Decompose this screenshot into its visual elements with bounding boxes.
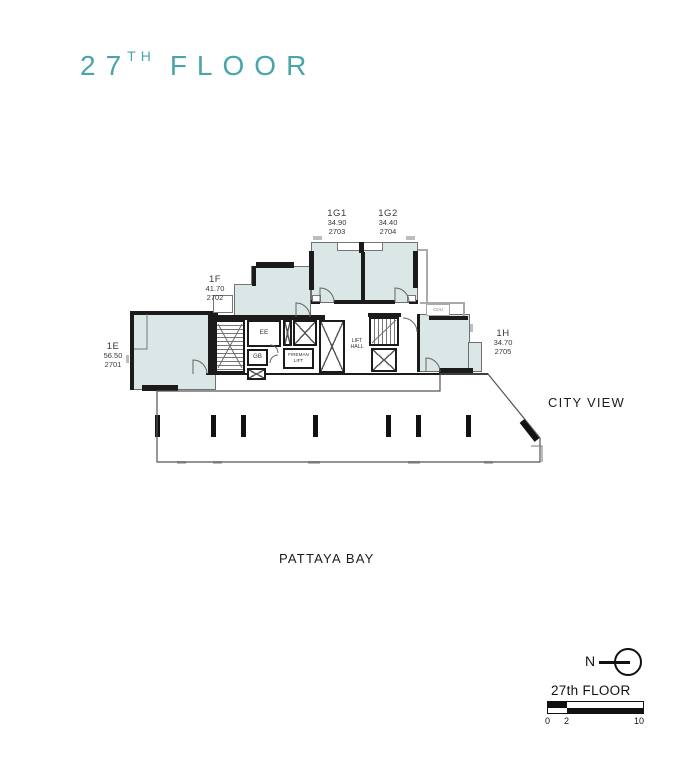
dim-tick bbox=[484, 461, 493, 464]
cdu-outline bbox=[463, 302, 465, 316]
column-mark bbox=[155, 415, 160, 437]
plan-lines bbox=[0, 0, 700, 758]
dim-tick bbox=[470, 324, 473, 332]
wall bbox=[334, 300, 395, 304]
north-label: N bbox=[585, 653, 595, 669]
north-compass-icon bbox=[614, 648, 642, 676]
fireman-line2: LIFT bbox=[283, 358, 314, 364]
lift-shaft-b bbox=[319, 320, 345, 373]
unit-label-1e: 1E 56.50 2701 bbox=[91, 341, 135, 370]
cdu-outline bbox=[418, 249, 428, 251]
legend-floor-label: 27th FLOOR bbox=[551, 683, 631, 698]
unit-number: 2703 bbox=[315, 228, 359, 237]
wall bbox=[309, 251, 314, 290]
scale-tick-2: 2 bbox=[564, 716, 569, 726]
city-view-label: CITY VIEW bbox=[548, 395, 625, 410]
lifthall-line2: HALL bbox=[345, 344, 369, 350]
wall bbox=[429, 316, 468, 320]
column-mark bbox=[466, 415, 471, 437]
fireman-lift-label: FIREMAN LIFT bbox=[283, 352, 314, 363]
stair-right bbox=[369, 317, 399, 346]
unit-1g1-room bbox=[311, 242, 364, 303]
column-mark bbox=[313, 415, 318, 437]
wall bbox=[361, 252, 365, 304]
scale-tick-0: 0 bbox=[545, 716, 550, 726]
dim-tick bbox=[177, 461, 186, 464]
wall bbox=[417, 314, 420, 372]
lift-hall-label: LIFT HALL bbox=[345, 338, 369, 350]
cdu-label: CDU bbox=[426, 307, 450, 313]
unit-label-1g2: 1G2 34.40 2704 bbox=[366, 208, 410, 237]
unit-label-1h: 1H 34.70 2705 bbox=[481, 328, 525, 357]
unit-number: 2702 bbox=[193, 294, 237, 303]
dim-tick bbox=[408, 461, 420, 464]
lift-shaft-a bbox=[293, 320, 317, 346]
scale-bar bbox=[547, 701, 644, 714]
wall bbox=[359, 242, 364, 253]
dim-tick bbox=[308, 461, 320, 464]
lift-shaft-c bbox=[371, 348, 397, 372]
unit-label-1f: 1F 41.70 2702 bbox=[193, 274, 237, 303]
stair-left bbox=[215, 320, 245, 373]
column-mark bbox=[416, 415, 421, 437]
ee-label: EE bbox=[247, 329, 281, 337]
door-threshold bbox=[407, 295, 416, 302]
cdu-outline bbox=[426, 250, 428, 303]
gb-label: GB bbox=[247, 354, 268, 361]
scale-bar-bottom bbox=[548, 708, 643, 714]
pattaya-bay-label: PATTAYA BAY bbox=[279, 551, 375, 566]
column-mark bbox=[386, 415, 391, 437]
unit-number: 2701 bbox=[91, 361, 135, 370]
wall bbox=[130, 311, 218, 315]
door-threshold bbox=[312, 295, 321, 302]
unit-1e-room bbox=[130, 313, 216, 390]
unit-number: 2705 bbox=[481, 348, 525, 357]
unit-1g2-room bbox=[363, 242, 418, 303]
shaft-small bbox=[247, 368, 266, 380]
unit-1h-room bbox=[417, 314, 470, 372]
scale-tick-10: 10 bbox=[634, 716, 644, 726]
floor-plan: 1G1 34.90 2703 1G2 34.40 2704 1F 41.70 2… bbox=[0, 0, 700, 758]
column-mark bbox=[241, 415, 246, 437]
wall bbox=[252, 266, 256, 286]
shaft-narrow bbox=[283, 320, 292, 346]
column-mark bbox=[211, 415, 216, 437]
unit-label-1g1: 1G1 34.90 2703 bbox=[315, 208, 359, 237]
wall bbox=[439, 368, 473, 373]
unit-number: 2704 bbox=[366, 228, 410, 237]
dim-tick bbox=[213, 461, 222, 464]
wall bbox=[413, 251, 418, 288]
wall bbox=[208, 313, 215, 375]
wall bbox=[142, 385, 178, 391]
wall bbox=[256, 262, 294, 268]
